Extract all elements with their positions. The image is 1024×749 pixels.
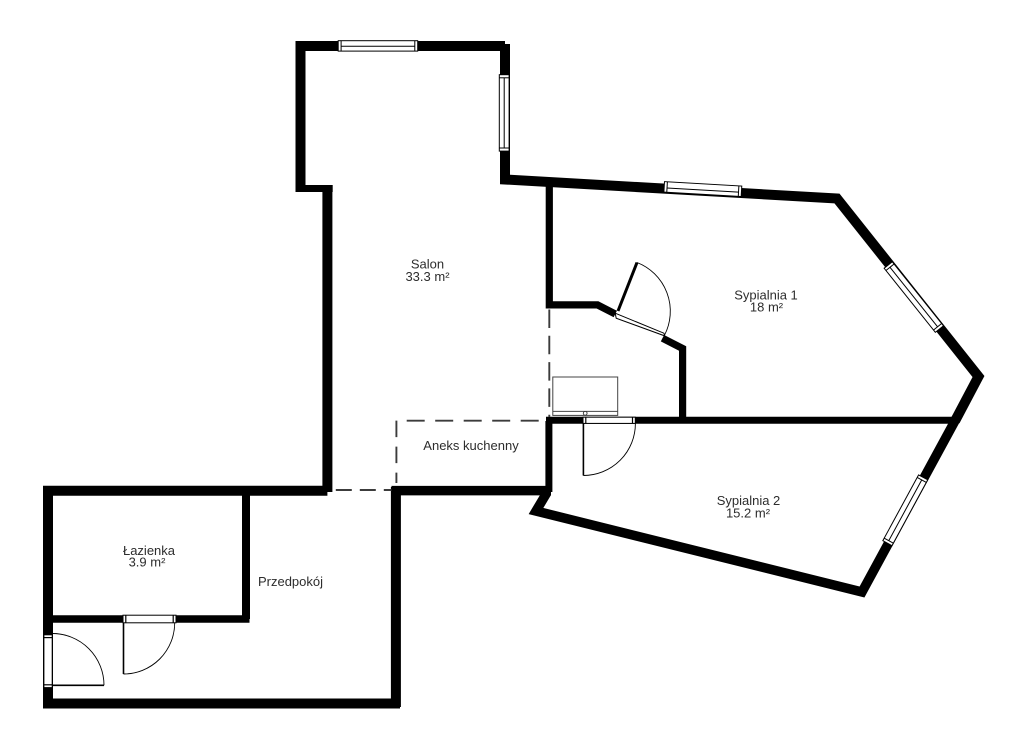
svg-text:Aneks kuchenny: Aneks kuchenny: [423, 438, 519, 453]
svg-text:3.9 m²: 3.9 m²: [129, 555, 167, 570]
svg-text:18 m²: 18 m²: [750, 300, 784, 315]
svg-text:Przedpokój: Przedpokój: [258, 574, 323, 589]
svg-text:15.2 m²: 15.2 m²: [726, 506, 771, 521]
svg-text:33.3 m²: 33.3 m²: [405, 269, 450, 284]
